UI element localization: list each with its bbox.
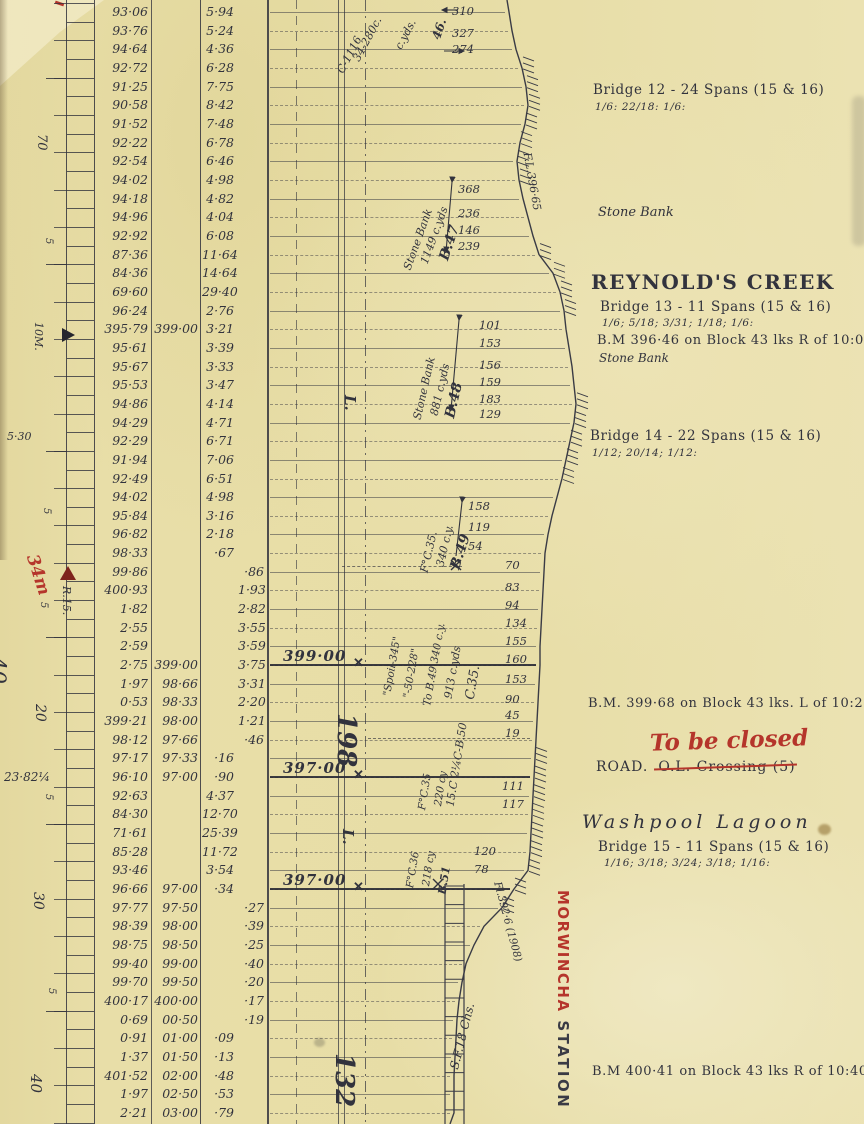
ground-level-value: 95·67 [96,359,148,374]
ruler-tick [54,152,67,153]
stone-bank-note: Stone Bank [599,351,669,365]
stain [818,824,831,835]
earthworks-note-fc35b: F°C.35 [416,773,434,811]
ground-level-value: 85·28 [96,844,148,859]
ground-level-value: 92·49 [96,471,148,486]
bank-hatching [536,753,547,757]
ruler-rung [67,824,94,825]
ruler-tick [54,1085,67,1086]
ground-level-value: 93·76 [96,23,148,38]
ruler-tick [54,414,67,415]
ruler-rung [67,899,94,900]
ruler-rung [67,246,94,247]
benchmark-400-note: B.M 400·41 on Block 43 lks R of 10:40·00 [592,1064,864,1079]
row-line [270,292,556,293]
bank-hatching [554,262,565,266]
cutting-depth-value: ·39 [238,918,264,933]
bank-height-value: 2·76 [202,303,234,318]
bank-hatching [532,834,543,838]
ruler-rung [67,992,94,993]
earthworks-note-spoil: "Spoil-345" [381,636,403,697]
cutting-depth-value: ·46 [238,732,264,747]
bank-hatching [529,871,540,875]
bank-height-value: ·13 [202,1049,234,1064]
bank-hatching [540,256,551,260]
ground-level-value: 399·21 [96,713,148,728]
bank-hatching [529,94,540,98]
ruler-rung [67,414,94,415]
ruler-rung [67,619,94,620]
cutting-depth-value: 2·20 [238,694,264,709]
bank-height-value: 4·98 [202,172,234,187]
formation-level-value: 399·00 [152,657,198,672]
earthworks-note-c35: C.35. [463,664,484,700]
ground-level-value: 92·29 [96,433,148,448]
mile-label-r15: R.15. [60,586,73,615]
row-line [270,814,528,815]
ruler-rung [67,488,94,489]
ruler-rung [67,805,94,806]
cutting-depth-value: ·40 [238,956,264,971]
ruler-tick [54,190,67,191]
mile-label-mile10: 10M. [32,322,45,351]
ruler-rung [67,880,94,881]
bank-hatching [526,125,537,129]
earthworks-note-big132: 132 [329,1053,359,1107]
ruler-rung [67,787,94,788]
cutting-depth-value: ·20 [238,974,264,989]
row-line [270,441,566,442]
row-line [270,367,568,368]
formation-level-value: 399·00 [152,321,198,336]
row-line [270,1094,450,1095]
row-line [270,1038,452,1039]
ruler-rung [67,283,94,284]
ruler-tick [54,1048,67,1049]
section-area-value: 153 [505,672,527,686]
bank-hatching [515,884,526,888]
bank-height-value: 4·82 [202,191,234,206]
formation-level-value: 01·00 [152,1030,198,1045]
row-line [270,1113,450,1114]
bank-hatching [577,399,588,403]
ground-level-value: 95·61 [96,340,148,355]
bank-height-value: 5·24 [202,23,234,38]
ruler-tick [54,302,67,303]
ground-level-value: 98·33 [96,545,148,560]
milepost-10-marker [62,328,75,342]
ground-level-value: 1·97 [96,676,148,691]
row-line [270,180,515,181]
ground-level-value: 98·12 [96,732,148,747]
ground-level-value: 94·86 [96,396,148,411]
ruler-rung [67,955,94,956]
bank-height-value: 3·21 [202,321,234,336]
section-area-value: 159 [479,375,501,389]
earthworks-note-b50: 15.C 2¼C-B.50 [444,722,470,808]
section-area-value: 274 [452,42,474,56]
bank-hatching [529,100,540,104]
ground-level-value: 0·69 [96,1012,148,1027]
ruler-tick [54,563,67,564]
bank-height-value: 11·72 [202,844,234,859]
ruler-rung [67,768,94,769]
section-area-value: 45 [505,708,520,722]
ground-level-value: 94·29 [96,415,148,430]
section-area-value: 183 [479,392,501,406]
formation-level-value: 97·00 [152,881,198,896]
section-area-value: 327 [452,26,474,40]
row-line [270,49,512,50]
ruler-rung [67,1104,94,1105]
row-line [270,516,548,517]
ground-level-value: 2·21 [96,1105,148,1120]
bank-hatching [575,424,586,428]
ground-level-value: 99·86 [96,564,148,579]
ground-level-value: 92·22 [96,135,148,150]
ground-level-value: 98·75 [96,937,148,952]
cutting-depth-value: ·27 [238,900,264,915]
ruler-tick [54,115,67,116]
ground-level-value: 0·91 [96,1030,148,1045]
benchmark-396-note: B.M 396·46 on Block 43 lks R of 10:0·00 [597,333,864,348]
ground-level-value: 92·92 [96,228,148,243]
ground-level-value: 401·52 [96,1068,148,1083]
ground-level-value: 87·36 [96,247,148,262]
station-name-vertical: MORWINCHA STATION [554,890,572,1100]
ground-level-value: 96·82 [96,526,148,541]
earthworks-note-n50228: "-50-228" [401,648,422,699]
ruler-rung [67,451,94,452]
ruler-rung [67,190,94,191]
ground-level-value: 84·36 [96,265,148,280]
ground-level-value: 96·66 [96,881,148,896]
section-area-value: 153 [479,336,501,350]
formation-level-value: 400·00 [152,993,198,1008]
ruler-tick [54,787,67,788]
bank-hatching [532,822,543,826]
ruler-rung [67,1085,94,1086]
bank-hatching [526,113,537,117]
row-line [270,1076,450,1077]
station-name: MORWINCHA [554,890,572,1013]
bank-hatching [521,144,532,148]
ground-level-value: 98·39 [96,918,148,933]
ground-level-value: 96·10 [96,769,148,784]
ruler-rung [67,581,94,582]
bank-hatching [523,69,534,73]
row-line [270,497,553,498]
ruler-tick [54,525,67,526]
bank-height-value: 4·98 [202,489,234,504]
stone-bank-note: Stone Bank [598,206,674,220]
bank-hatching [577,393,588,397]
bank-hatching [540,244,551,248]
section-area-value: 239 [458,239,480,253]
ground-level-value: 95·53 [96,377,148,392]
ruler-rung [67,22,94,23]
bank-hatching [554,274,565,278]
ground-level-value: 400·93 [96,582,148,597]
bank-height-value: 5·94 [202,4,234,19]
row-line [270,740,532,741]
ruler-rung [67,302,94,303]
formation-level-value: 99·50 [152,974,198,989]
ground-level-value: 1·82 [96,601,148,616]
bank-hatching [532,828,543,832]
ruler-rung [67,861,94,862]
ruler-rung [67,320,94,321]
ground-level-value: 84·30 [96,806,148,821]
road-crossing-note: ROAD.O.L. Crossing (5) [596,759,796,775]
bank-height-value: 6·28 [202,60,234,75]
bank-hatching [563,468,574,472]
ruler-rung [67,973,94,974]
bank-hatching [534,791,545,795]
bank-height-value: 3·16 [202,508,234,523]
row-line [270,199,519,200]
bank-height-value: ·53 [202,1086,234,1101]
bank-hatching [565,300,576,304]
ruler-tick [54,749,67,750]
ground-level-value: 90·58 [96,97,148,112]
ruler-rung [67,712,94,713]
bank-height-value: 12·70 [202,806,234,821]
bank-hatching [563,474,574,478]
bridge-12-note: Bridge 12 - 24 Spans (15 & 16) [593,82,824,98]
bridge-13-spans: 1/6; 5/18; 3/31; 1/18; 1/6: [602,317,754,329]
bank-height-value: 4·37 [202,788,234,803]
bank-hatching [515,878,526,882]
formation-level-value: 00·50 [152,1012,198,1027]
cutting-depth-value: 3·55 [238,620,264,635]
bank-height-value: 6·46 [202,153,234,168]
bridge-12-spans: 1/6: 22/18: 1/6: [595,101,686,113]
row-line [270,609,538,610]
row-line [270,329,562,330]
bank-height-value: 7·06 [202,452,234,467]
section-area-value: 156 [479,358,501,372]
ruler-major-tick [46,1011,67,1012]
ground-level-value: 95·84 [96,508,148,523]
row-line [270,348,565,349]
bank-height-value: 4·04 [202,209,234,224]
ruler-rung [67,208,94,209]
bank-hatching [571,442,582,446]
ruler-rung [67,731,94,732]
bank-height-value: 11·64 [202,247,234,262]
formation-level-value: 98·00 [152,918,198,933]
cutting-depth-value: ·86 [238,564,264,579]
formation-level-value: 97·50 [152,900,198,915]
bank-height-value: 6·71 [202,433,234,448]
bank-hatching [561,281,572,285]
ground-level-value: 92·72 [96,60,148,75]
bank-hatching [531,847,542,851]
ground-level-value: 71·61 [96,825,148,840]
formation-level-value: 97·66 [152,732,198,747]
ruler-rung [67,1067,94,1068]
bank-hatching [527,82,538,86]
bank-hatching [521,138,532,142]
ruler-rung [67,749,94,750]
row-line [270,572,540,573]
earthworks-note-b51: B.51 [436,865,453,895]
row-line [270,833,527,834]
formation-level-value: 02·00 [152,1068,198,1083]
bank-height-value: 14·64 [202,265,234,280]
ruler-rung [67,1123,94,1124]
section-area-value: 111 [502,779,524,793]
bank-height-value: 7·75 [202,79,234,94]
section-area-value: 155 [505,634,527,648]
ruler-rung [67,675,94,676]
ruler-rung [67,936,94,937]
bridge-14-spans: 1/12; 20/14; 1/12: [592,447,698,459]
formation-level-value: 98·00 [152,713,198,728]
ruler-major-tick [46,824,67,825]
closure-stamp: To be closed [650,724,809,757]
creek-name: REYNOLD'S CREEK [591,270,835,294]
row-line [270,236,529,237]
bank-hatching [571,436,582,440]
section-area-value: 120 [474,844,496,858]
stain [314,1038,325,1047]
ruler-rung [67,171,94,172]
ground-level-value: 92·63 [96,788,148,803]
bank-hatching [529,106,540,110]
bank-hatching [571,430,582,434]
ground-level-value: 94·02 [96,489,148,504]
ruler-rung [67,656,94,657]
ruler-rung [67,59,94,60]
ruler-tick [54,973,67,974]
bank-height-value: ·34 [202,881,234,896]
bank-hatching [540,250,551,254]
ground-level-value: 97·17 [96,750,148,765]
bank-hatching [531,853,542,857]
ruler-rung [67,1011,94,1012]
ruler-rung [67,134,94,135]
ruler-tick [54,861,67,862]
ruler-major-tick [46,637,67,638]
ruler-major-tick [46,451,67,452]
survey-cross-mark: ✕ [353,768,364,783]
survey-cross-mark: ✕ [353,880,364,895]
mile-label-s2: 5 [41,508,52,514]
ruler-rung [67,563,94,564]
row-line [270,217,524,218]
row-line [270,908,498,909]
bank-hatching [535,778,546,782]
scanned-railway-section-sheet: 70510M.5·30534mR.15.5402023·82¼530540 93… [0,0,864,1124]
earthworks-note-floodUpper: F.L.396·65 [521,151,544,211]
row-line [270,460,562,461]
bank-height-value: 3·54 [202,862,234,877]
station-word: STATION [554,1020,572,1109]
bank-hatching [533,803,544,807]
ruler-rung [67,376,94,377]
ground-level-value: 2·59 [96,638,148,653]
cutting-depth-value: ·25 [238,937,264,952]
section-area-value: 117 [502,797,524,811]
bank-hatching [534,785,545,789]
bank-height-value: 25·39 [202,825,234,840]
ruler-rung [67,1048,94,1049]
bank-height-value: 7·48 [202,116,234,131]
bridge-15-note: Bridge 15 - 11 Spans (15 & 16) [598,839,829,855]
earthworks-note-fc36qty: 218 cy [420,850,437,887]
plan-rule [344,0,345,1124]
ruler-rung [67,507,94,508]
cutting-depth-value: 2·82 [238,601,264,616]
bank-height-value: ·79 [202,1105,234,1120]
ground-level-value: 94·18 [96,191,148,206]
bank-height-value: ·67 [202,545,234,560]
formation-level-value: 97·00 [152,769,198,784]
cutting-depth-value: 3·31 [238,676,264,691]
ground-level-value: 94·96 [96,209,148,224]
mile-label-m30: 30 [30,892,46,910]
bank-hatching [575,412,586,416]
section-area-value: 160 [505,652,527,666]
section-area-value: 70 [505,558,520,572]
row-line [270,255,535,256]
bank-hatching [536,759,547,763]
bank-height-value: 2·18 [202,526,234,541]
row-line [270,273,549,274]
ground-level-value: 1·97 [96,1086,148,1101]
ruler-rung [67,525,94,526]
mile-label-s3: 5 [38,602,49,608]
ground-level-value: 2·75 [96,657,148,672]
section-area-value: 134 [505,616,527,630]
ground-level-value: 93·06 [96,4,148,19]
section-area-value: 310 [452,4,474,18]
ruler-tick [54,675,67,676]
bank-hatching [531,841,542,845]
section-area-value: 94 [505,598,520,612]
formation-level-value: 01·50 [152,1049,198,1064]
ruler-major-tick [46,264,67,265]
bank-height-value: 6·51 [202,471,234,486]
section-area-value: 83 [505,580,520,594]
bridge-15-spans: 1/16; 3/18; 3/24; 3/18; 1/16: [604,857,770,869]
bank-hatching [535,766,546,770]
bank-height-value: 6·08 [202,228,234,243]
column-rule [200,0,201,1124]
bank-height-value: ·09 [202,1030,234,1045]
formation-level-value: 98·33 [152,694,198,709]
ruler-tick [54,712,67,713]
row-line [270,982,458,983]
ruler-tick [54,376,67,377]
row-line [270,590,539,591]
mile-label-m40: 40 [0,656,9,684]
cutting-depth-value: 1·21 [238,713,264,728]
bank-hatching [567,461,578,465]
bank-hatching [565,306,576,310]
ruler-tick [54,40,67,41]
ground-level-value: 91·94 [96,452,148,467]
bank-height-value: ·48 [202,1068,234,1083]
bridge-13-note: Bridge 13 - 11 Spans (15 & 16) [600,299,831,315]
ruler-tick [54,227,67,228]
mile-label-red34m: 34m [22,552,54,598]
ground-level-value: 99·40 [96,956,148,971]
bank-hatching [533,809,544,813]
section-area-value: 90 [505,692,520,706]
